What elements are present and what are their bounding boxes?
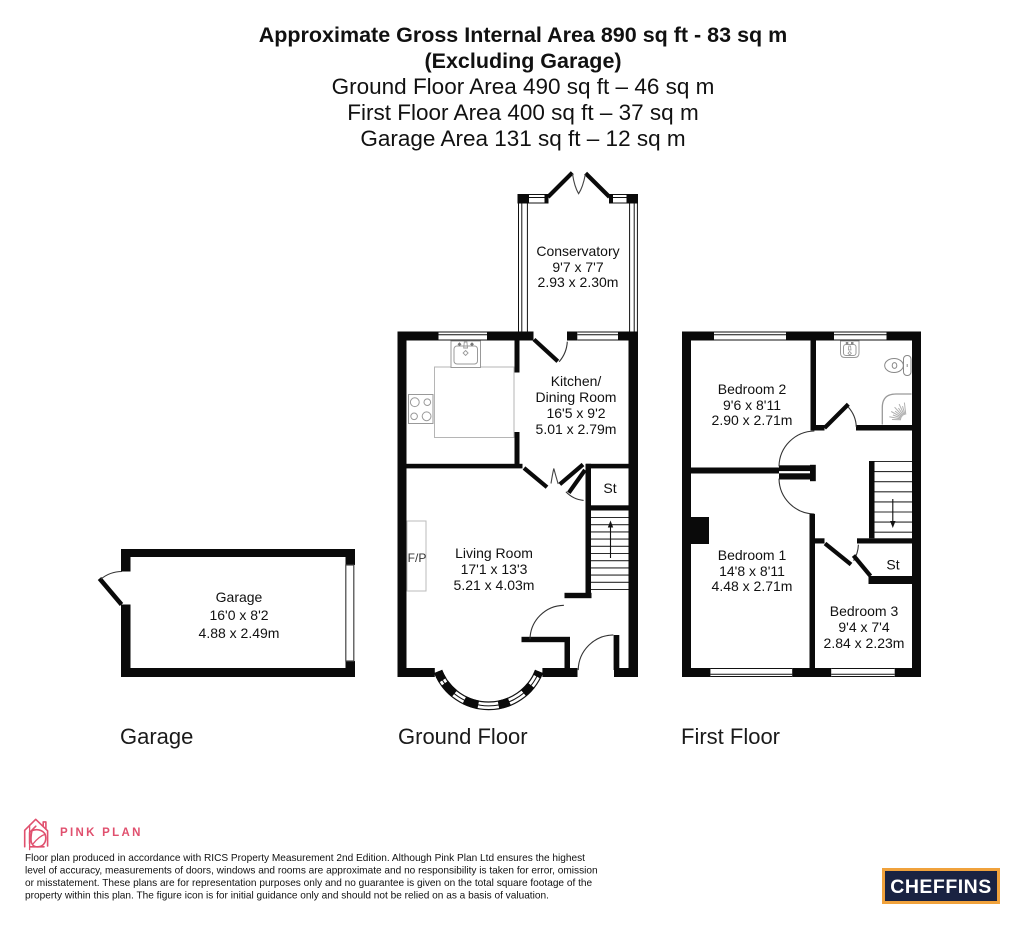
svg-text:Floor plan produced in accorda: Floor plan produced in accordance with R… — [25, 853, 585, 864]
svg-text:CHEFFINS: CHEFFINS — [890, 876, 992, 898]
svg-text:16'0 x 8'2: 16'0 x 8'2 — [209, 607, 268, 623]
svg-text:Ground Floor Area 490 sq ft –: Ground Floor Area 490 sq ft – 46 sq m — [332, 74, 715, 99]
svg-text:5.21 x 4.03m: 5.21 x 4.03m — [454, 577, 535, 593]
svg-text:St: St — [886, 557, 899, 573]
svg-text:17'1 x 13'3: 17'1 x 13'3 — [461, 561, 528, 577]
svg-text:5.01 x 2.79m: 5.01 x 2.79m — [536, 421, 617, 437]
svg-text:16'5 x 9'2: 16'5 x 9'2 — [546, 405, 605, 421]
svg-text:F/P: F/P — [408, 551, 427, 565]
svg-text:Approximate Gross Internal Are: Approximate Gross Internal Area 890 sq f… — [259, 23, 788, 47]
svg-text:PINK PLAN: PINK PLAN — [60, 827, 143, 839]
svg-text:Conservatory: Conservatory — [536, 243, 619, 259]
svg-text:Bedroom 3: Bedroom 3 — [830, 603, 899, 619]
svg-text:St: St — [603, 480, 616, 496]
svg-text:or misstatement. These plans a: or misstatement. These plans are for rep… — [25, 878, 592, 889]
svg-text:14'8 x 8'11: 14'8 x 8'11 — [719, 563, 785, 579]
svg-text:Garage: Garage — [120, 724, 193, 749]
svg-text:level of accuracy, measurement: level of accuracy, measurements of doors… — [25, 866, 598, 877]
svg-text:Garage: Garage — [216, 589, 263, 605]
svg-text:2.90 x 2.71m: 2.90 x 2.71m — [712, 412, 793, 428]
svg-text:First Floor Area 400 sq ft – 3: First Floor Area 400 sq ft – 37 sq m — [347, 100, 698, 125]
svg-text:Living Room: Living Room — [455, 545, 533, 561]
svg-text:Bedroom 2: Bedroom 2 — [718, 381, 787, 397]
svg-text:Kitchen/: Kitchen/ — [551, 373, 602, 389]
svg-text:2.84 x 2.23m: 2.84 x 2.23m — [824, 635, 905, 651]
svg-text:Dining Room: Dining Room — [536, 389, 617, 405]
svg-text:4.88 x 2.49m: 4.88 x 2.49m — [199, 625, 280, 641]
svg-text:2.93 x 2.30m: 2.93 x 2.30m — [538, 274, 619, 290]
svg-text:9'7 x 7'7: 9'7 x 7'7 — [552, 259, 603, 275]
svg-text:Ground Floor: Ground Floor — [398, 724, 528, 749]
svg-text:Garage Area 131 sq ft – 12 sq: Garage Area 131 sq ft – 12 sq m — [360, 126, 685, 151]
svg-text:property within this plan. The: property within this plan. The figure ic… — [25, 891, 549, 902]
svg-text:9'4 x 7'4: 9'4 x 7'4 — [838, 619, 889, 635]
svg-text:9'6 x 8'11: 9'6 x 8'11 — [723, 397, 781, 413]
svg-text:(Excluding Garage): (Excluding Garage) — [424, 49, 621, 73]
svg-text:First Floor: First Floor — [681, 724, 780, 749]
svg-text:4.48 x 2.71m: 4.48 x 2.71m — [712, 578, 793, 594]
svg-text:Bedroom 1: Bedroom 1 — [718, 547, 787, 563]
